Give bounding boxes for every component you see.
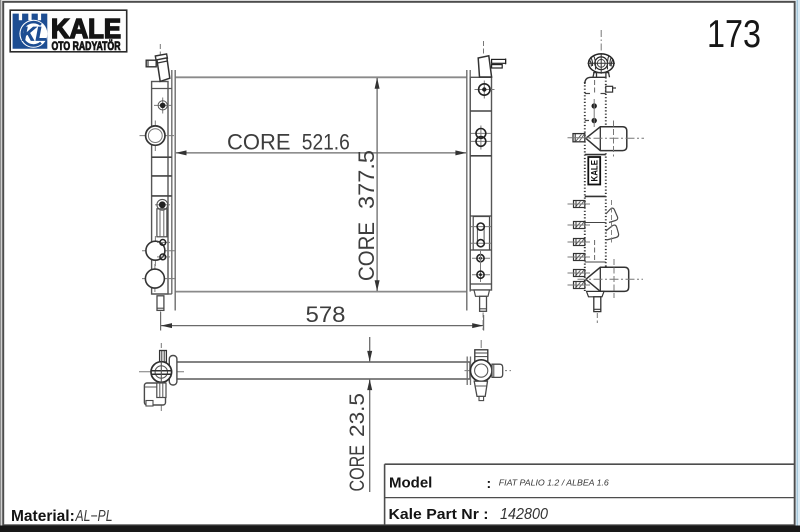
- svg-text:173: 173: [707, 13, 761, 56]
- svg-text:KALE: KALE: [590, 160, 600, 182]
- svg-text:Kale Part Nr :: Kale Part Nr :: [389, 506, 489, 523]
- svg-text:CORE: CORE: [346, 445, 369, 492]
- svg-text:Model: Model: [389, 475, 432, 492]
- svg-text:521.6: 521.6: [302, 129, 350, 154]
- svg-text:KALE: KALE: [51, 13, 121, 44]
- svg-text:Material:: Material:: [11, 508, 75, 525]
- svg-text:OTO RADYATÖR: OTO RADYATÖR: [52, 40, 122, 53]
- svg-text:377.5: 377.5: [354, 150, 379, 209]
- svg-text:AL−PL: AL−PL: [75, 508, 113, 525]
- svg-text:CORE: CORE: [354, 222, 379, 281]
- svg-text:KL: KL: [22, 25, 47, 46]
- svg-text:FIAT PALIO 1.2 / ALBEA 1.6: FIAT PALIO 1.2 / ALBEA 1.6: [499, 478, 609, 488]
- svg-text:142800: 142800: [500, 506, 548, 523]
- svg-text:CORE: CORE: [227, 129, 291, 154]
- svg-text:578: 578: [306, 302, 346, 327]
- svg-text::: :: [487, 475, 492, 491]
- svg-text:23.5: 23.5: [346, 393, 369, 437]
